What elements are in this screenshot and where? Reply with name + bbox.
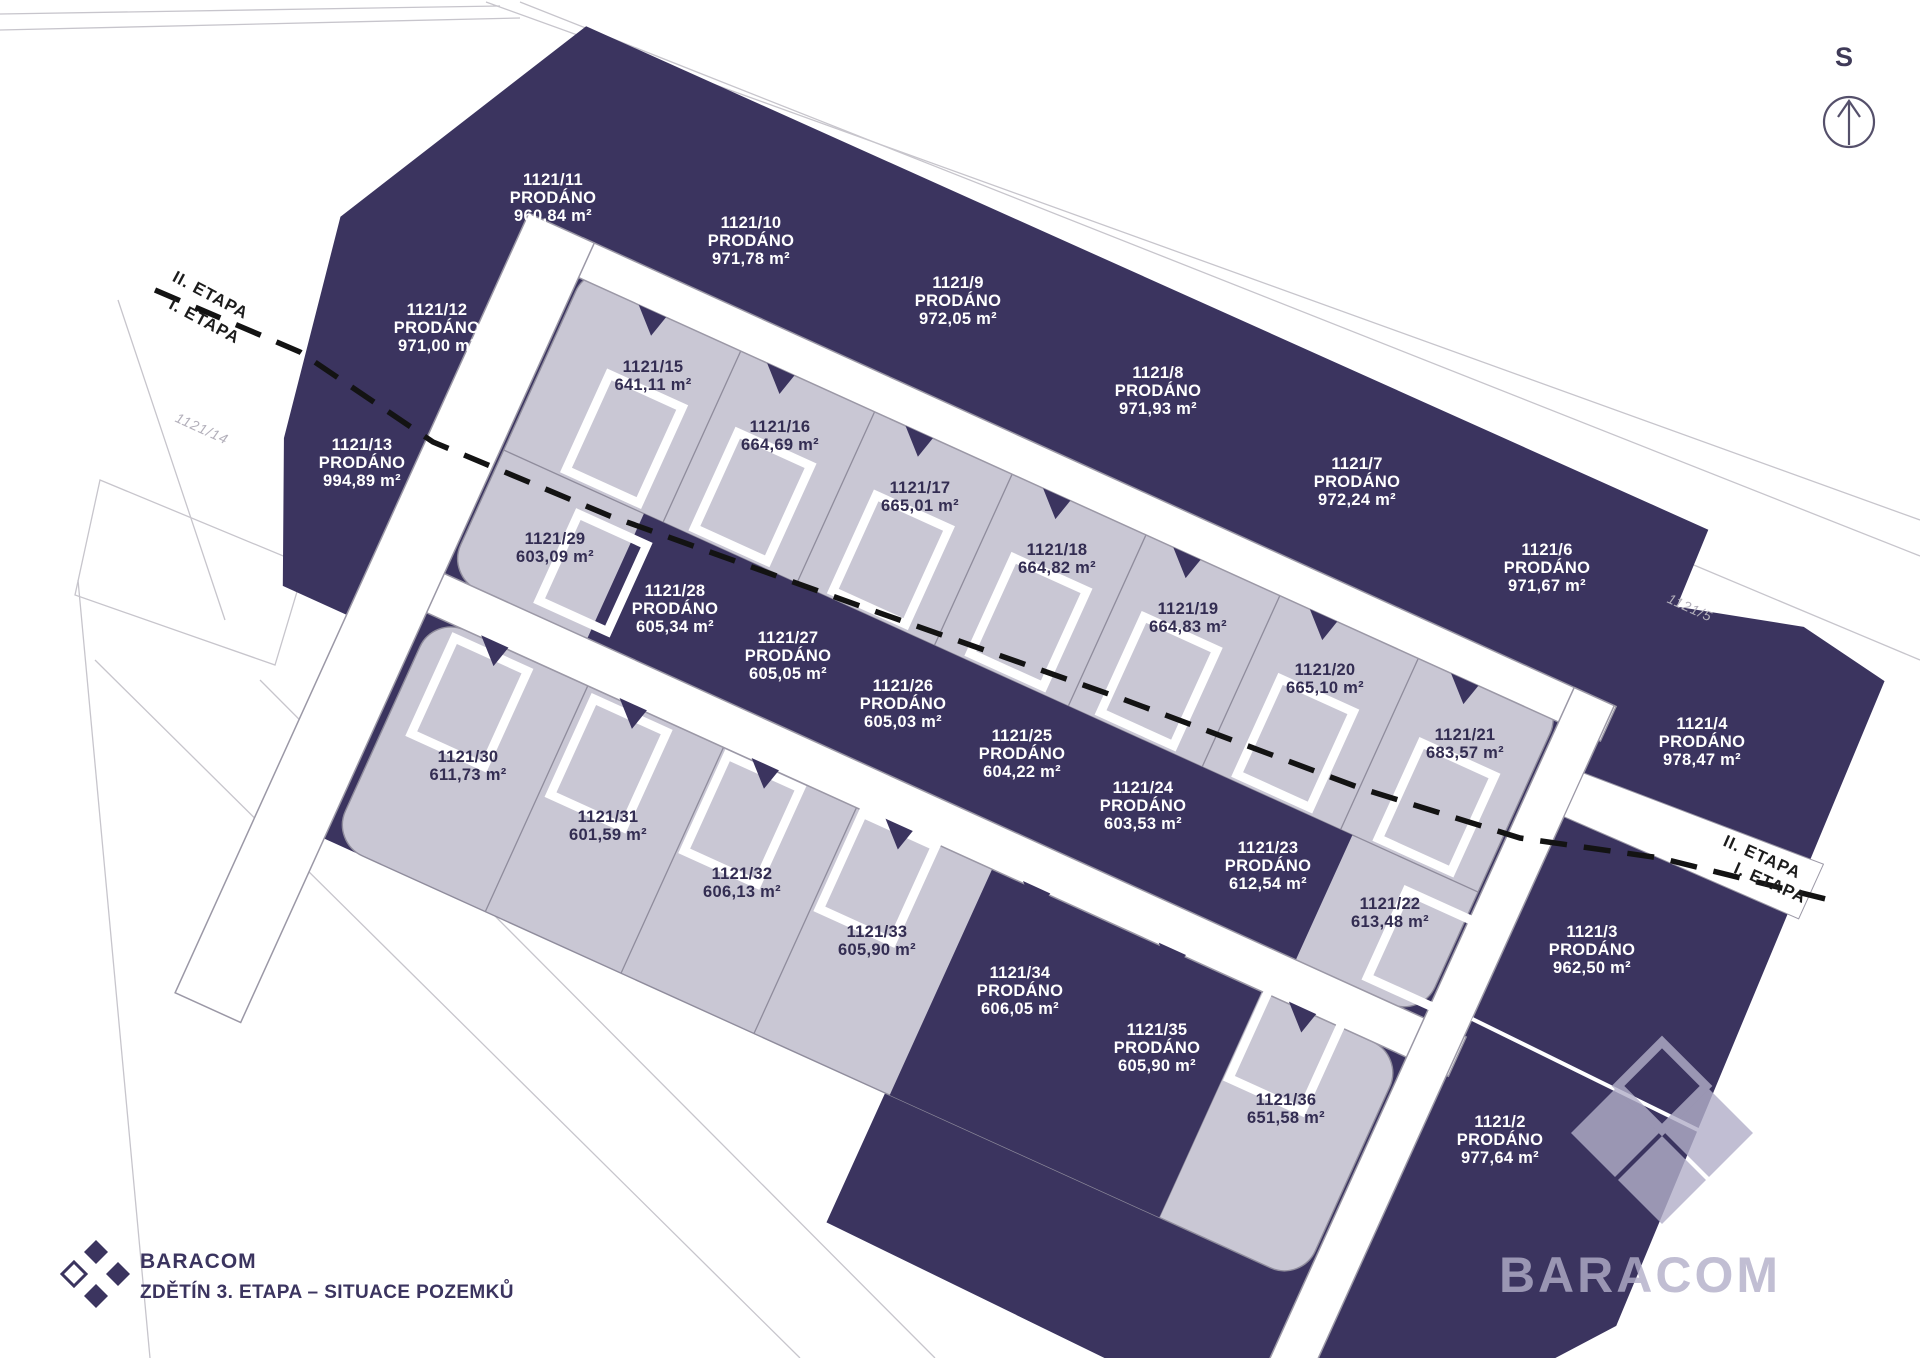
plot-label-label: 1121/34 [990,964,1051,982]
plot-label-status: PRODÁNO [1659,732,1745,751]
plot-label-status: PRODÁNO [1457,1130,1543,1149]
plot-label-area: 605,05 m² [749,665,827,683]
plot-label: 1121/31601,59 m² [569,808,647,844]
plot-label-status: PRODÁNO [915,291,1001,310]
plot-label-status: PRODÁNO [708,231,794,250]
plot-label-area: 605,90 m² [838,941,916,959]
plot-label-label: 1121/10 [721,214,782,232]
plot-label-status: PRODÁNO [1504,558,1590,577]
plot-label: 1121/24PRODÁNO603,53 m² [1100,779,1186,833]
plot-label-label: 1121/28 [645,582,706,600]
plot-label-label: 1121/13 [332,436,393,454]
plot-label: 1121/10PRODÁNO971,78 m² [708,214,794,268]
footer-brand-name: BARACOM [140,1250,257,1273]
plot-label: 1121/17665,01 m² [881,479,959,515]
plot-label-label: 1121/4 [1676,715,1728,733]
footer-brand-block: BARACOM ZDĚTÍN 3. ETAPA – SITUACE POZEMK… [62,1240,514,1308]
plot-label-area: 683,57 m² [1426,744,1504,762]
footer-plan-title: ZDĚTÍN 3. ETAPA – SITUACE POZEMKŮ [140,1280,514,1303]
plot-label-area: 664,82 m² [1018,559,1096,577]
plot-label-label: 1121/27 [758,629,819,647]
plot-label-status: PRODÁNO [1115,381,1201,400]
plot-label-area: 977,64 m² [1461,1149,1539,1167]
plot-label-status: PRODÁNO [319,453,405,472]
plot-label: 1121/33605,90 m² [838,923,916,959]
plot-label-label: 1121/32 [712,865,773,883]
plot-label-status: PRODÁNO [979,744,1065,763]
plot-label-area: 641,11 m² [614,376,691,394]
plot-label-area: 613,48 m² [1351,913,1429,931]
plot-label: 1121/36651,58 m² [1247,1091,1325,1127]
plot-label-label: 1121/26 [873,677,934,695]
plot-label-area: 972,24 m² [1318,491,1396,509]
plot-label-area: 603,53 m² [1104,815,1182,833]
plot-label-area: 605,03 m² [864,713,942,731]
plot-label-area: 603,09 m² [516,548,594,566]
plot-label-label: 1121/23 [1238,839,1299,857]
baracom-logo-icon [62,1240,130,1308]
plot-label-area: 612,54 m² [1229,875,1307,893]
plot-label: 1121/28PRODÁNO605,34 m² [632,582,718,636]
plot-label-status: PRODÁNO [510,188,596,207]
plot-label-status: PRODÁNO [977,981,1063,1000]
plot-label-label: 1121/11 [523,171,583,189]
plot-label-area: 604,22 m² [983,763,1061,781]
plot-label-status: PRODÁNO [860,694,946,713]
plot-label-label: 1121/30 [438,748,499,766]
plot-label-status: PRODÁNO [1100,796,1186,815]
plot-label: 1121/18664,82 m² [1018,541,1096,577]
plot-label-label: 1121/21 [1435,726,1496,744]
plot-label: 1121/26PRODÁNO605,03 m² [860,677,946,731]
plot-label-status: PRODÁNO [1549,940,1635,959]
plot-label: 1121/16664,69 m² [741,418,819,454]
plot-label-label: 1121/35 [1127,1021,1188,1039]
plot-label-area: 606,05 m² [981,1000,1059,1018]
plot-label-status: PRODÁNO [745,646,831,665]
plot-label-area: 971,78 m² [712,250,790,268]
plot-label-label: 1121/9 [932,274,983,292]
plot-label-area: 971,00 m² [398,337,476,355]
plot-label-label: 1121/17 [890,479,951,497]
plot-label-label: 1121/31 [578,808,639,826]
plot-label-status: PRODÁNO [1314,472,1400,491]
plot-label-status: PRODÁNO [632,599,718,618]
compass: S [1824,42,1874,147]
plot-label-label: 1121/8 [1132,364,1183,382]
site-plan-canvas: BARACOM 1121/2PRODÁNO977,64 m²1121/3PROD… [0,0,1920,1358]
plot-label: 1121/25PRODÁNO604,22 m² [979,727,1065,781]
watermark-brand-text: BARACOM [1499,1247,1781,1303]
plot-label-label: 1121/33 [847,923,908,941]
plot-label-label: 1121/29 [525,530,586,548]
plot-label: 1121/20665,10 m² [1286,661,1364,697]
plot-label-area: 978,47 m² [1663,751,1741,769]
plot-label-area: 664,83 m² [1149,618,1227,636]
plot-label-area: 611,73 m² [429,766,506,784]
plot-label-label: 1121/22 [1360,895,1421,913]
plot-label-area: 960,84 m² [514,207,592,225]
plot-label-label: 1121/18 [1027,541,1088,559]
plot-label: 1121/29603,09 m² [516,530,594,566]
plot-label: 1121/19664,83 m² [1149,600,1227,636]
plot-label-label: 1121/12 [407,301,468,319]
plot-label-area: 971,67 m² [1508,577,1586,595]
plot-label: 1121/12PRODÁNO971,00 m² [394,301,480,355]
plot-label: 1121/34PRODÁNO606,05 m² [977,964,1063,1018]
plot-label-area: 971,93 m² [1119,400,1197,418]
plot-label: 1121/32606,13 m² [703,865,781,901]
plot-label-label: 1121/19 [1158,600,1219,618]
plot-label-label: 1121/36 [1256,1091,1317,1109]
plot-label-label: 1121/25 [992,727,1053,745]
plot-label: 1121/30611,73 m² [429,748,506,784]
plot-label-label: 1121/6 [1521,541,1572,559]
plot-label-status: PRODÁNO [1225,856,1311,875]
plot-label-label: 1121/7 [1331,455,1382,473]
plot-label: 1121/21683,57 m² [1426,726,1504,762]
plot-label-area: 651,58 m² [1247,1109,1325,1127]
plot-label: 1121/15641,11 m² [614,358,691,394]
plot-label-area: 972,05 m² [919,310,997,328]
plot-label-area: 605,90 m² [1118,1057,1196,1075]
plot-label-area: 605,34 m² [636,618,714,636]
plot-label: 1121/23PRODÁNO612,54 m² [1225,839,1311,893]
plot-label-area: 665,01 m² [881,497,959,515]
plot-label: 1121/35PRODÁNO605,90 m² [1114,1021,1200,1075]
plot-label-area: 994,89 m² [323,472,401,490]
plot-label-label: 1121/2 [1474,1113,1525,1131]
plot-label: 1121/27PRODÁNO605,05 m² [745,629,831,683]
plot-label-area: 664,69 m² [741,436,819,454]
plot-label-status: PRODÁNO [1114,1038,1200,1057]
plot-label: 1121/13PRODÁNO994,89 m² [319,436,405,490]
plot-label-area: 665,10 m² [1286,679,1364,697]
plot-label-area: 606,13 m² [703,883,781,901]
compass-label: S [1835,42,1853,72]
plot-label-status: PRODÁNO [394,318,480,337]
plot-label-area: 962,50 m² [1553,959,1631,977]
plot-label-label: 1121/3 [1566,923,1617,941]
plot-label-area: 601,59 m² [569,826,647,844]
plot-label-label: 1121/20 [1295,661,1356,679]
plot-label-label: 1121/15 [623,358,684,376]
plot-label-label: 1121/16 [750,418,811,436]
parcel-ref-label: 1121/14 [173,409,231,447]
plot-label: 1121/22613,48 m² [1351,895,1429,931]
plot-label-label: 1121/24 [1113,779,1174,797]
site-plan-page: { "compass": { "label": "S" }, "etapa": … [0,0,1920,1358]
